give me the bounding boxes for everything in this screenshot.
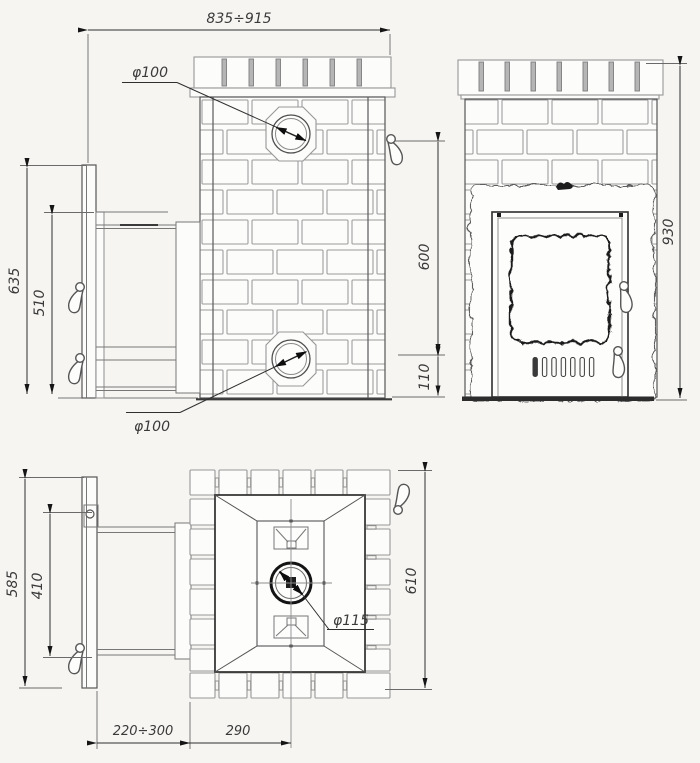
brick-crown bbox=[190, 57, 395, 97]
dim-rear-chimney-diameter-label: φ100 bbox=[134, 419, 170, 435]
dim-screen-height-label: 635 bbox=[7, 268, 23, 295]
tunnel-collar bbox=[175, 523, 191, 659]
dim-total-height-label: 930 bbox=[661, 219, 677, 246]
dim-chimney-diameter-label: φ115 bbox=[333, 613, 369, 629]
front-view: 930 bbox=[458, 60, 687, 401]
brick-crown bbox=[458, 60, 663, 99]
dim-tunnel-length-label: 220÷300 bbox=[113, 724, 174, 739]
technical-drawing-page: 835÷915 635 510 600 110 φ100 bbox=[0, 0, 700, 763]
wall-screen-panel bbox=[82, 165, 168, 398]
damper-handle-icon bbox=[394, 484, 410, 514]
wall-screen-panel bbox=[82, 477, 98, 688]
air-vent-slots bbox=[533, 358, 594, 377]
tunnel-collar bbox=[176, 222, 200, 393]
dim-total-width-label: 835÷915 bbox=[206, 11, 271, 27]
dim-top-chimney-diameter-label: φ100 bbox=[132, 65, 168, 81]
firebox-tunnel bbox=[97, 523, 191, 659]
firebox-tunnel bbox=[96, 222, 200, 393]
flame-glass-window bbox=[509, 234, 607, 341]
dim-portal-height-label: 510 bbox=[32, 290, 48, 317]
dim-portal-width-label: 410 bbox=[30, 573, 46, 600]
hinge-pin bbox=[86, 510, 94, 518]
plan-view: 585 410 610 φ115 220÷300 290 bbox=[5, 470, 432, 749]
stove-three-view-drawing: 835÷915 635 510 600 110 φ100 bbox=[0, 0, 700, 763]
dim-chimney-offset-label: 290 bbox=[226, 724, 251, 739]
dim-screen-width-label: 585 bbox=[5, 571, 21, 598]
damper-handle-icon bbox=[387, 135, 403, 165]
side-view: 835÷915 635 510 600 110 φ100 bbox=[7, 11, 445, 435]
dim-rear-outlet-height-label: 110 bbox=[417, 364, 433, 391]
dim-top-outlet-height-label: 600 bbox=[417, 244, 433, 271]
dim-body-depth-label: 610 bbox=[404, 568, 420, 595]
base-strip bbox=[462, 397, 654, 402]
portal-frame bbox=[96, 212, 104, 398]
stove-door bbox=[492, 212, 628, 397]
